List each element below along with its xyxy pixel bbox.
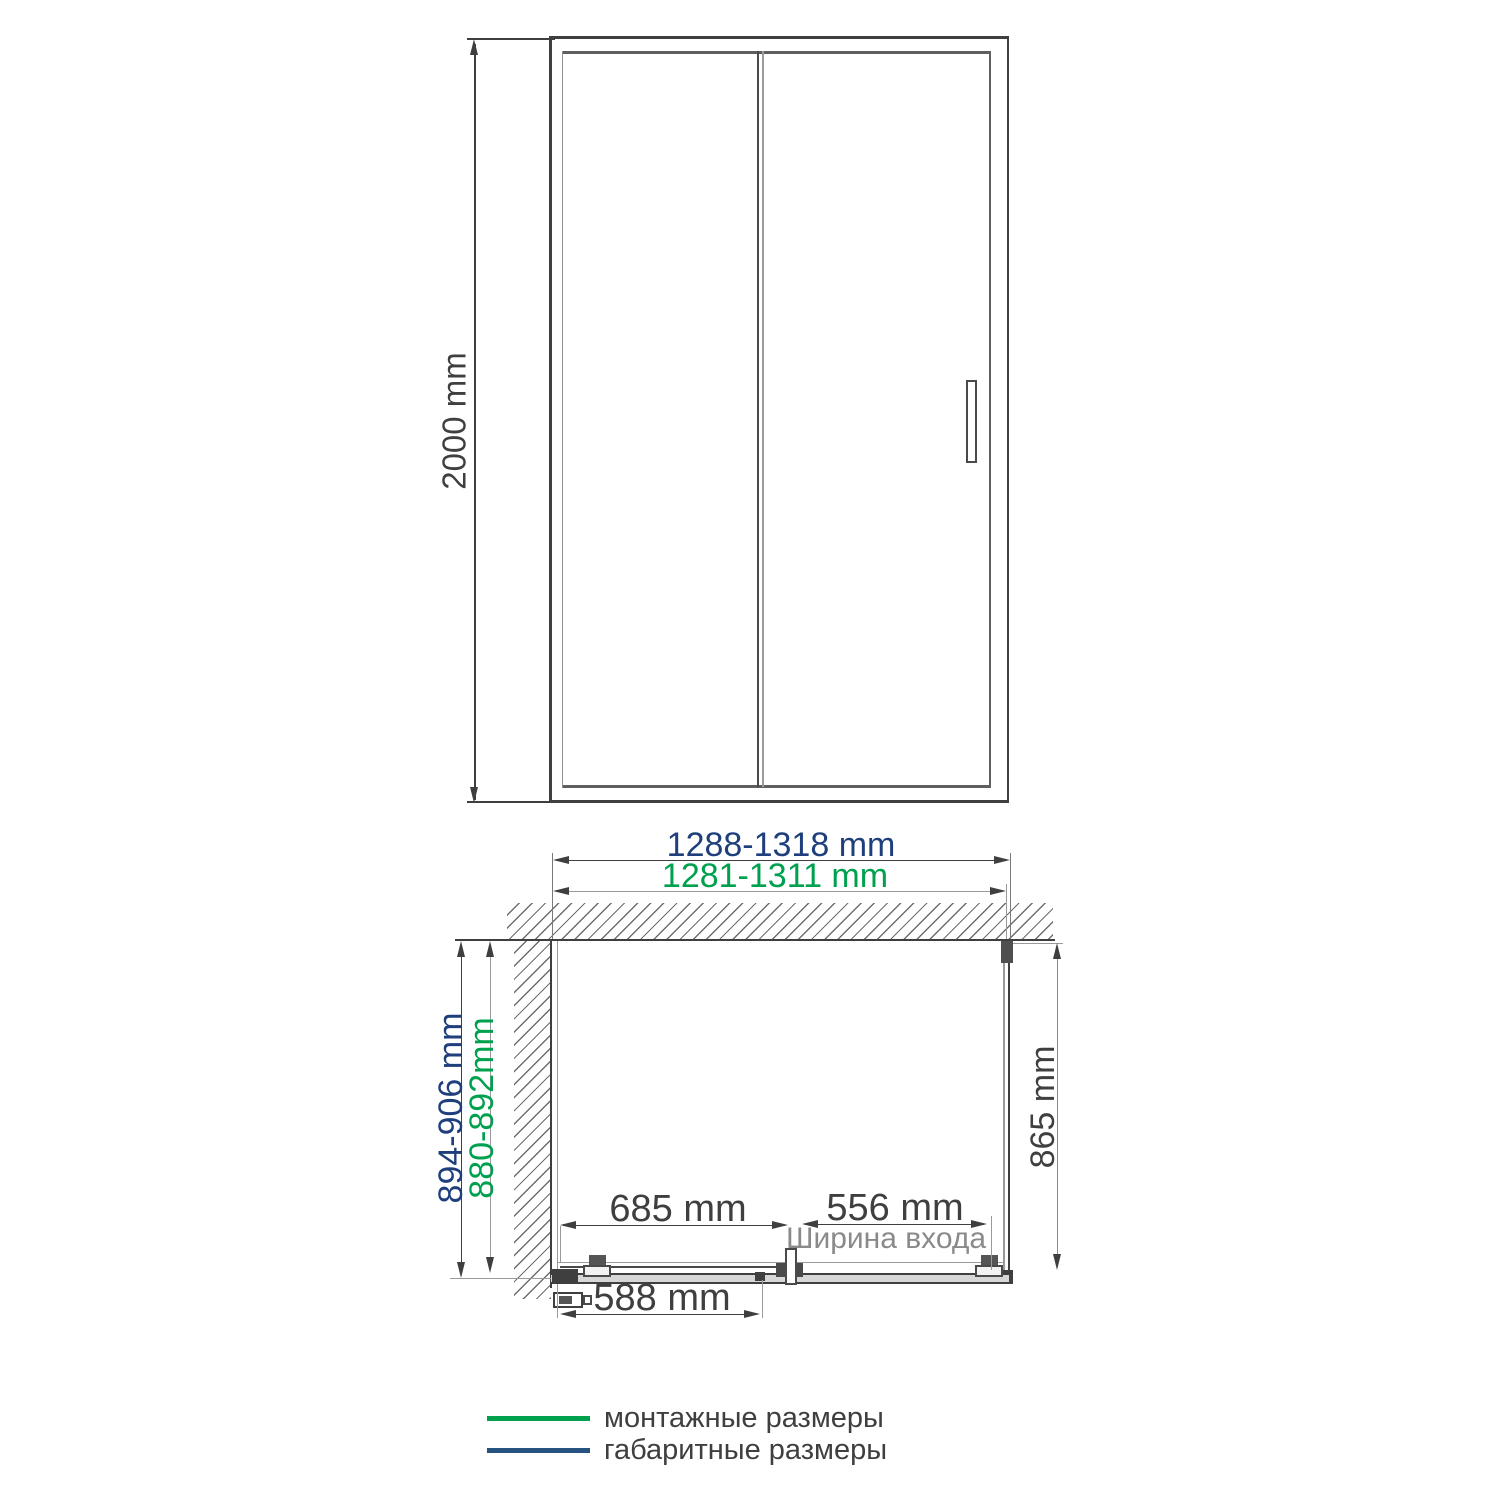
frame-top-outer-line: [550, 36, 1009, 39]
fixed-segment-arrow-left: [560, 1221, 576, 1229]
right-wall-profile-outer: [1007, 36, 1010, 802]
door-width-label: 588 mm: [593, 1279, 730, 1317]
side-panel-outer-line: [1008, 941, 1010, 1272]
wall-hatch-top: [507, 903, 1053, 939]
left-profile-plan-line: [557, 941, 559, 1271]
left-wall-profile-outer: [549, 36, 552, 802]
fixed-panel-edge: [757, 51, 760, 787]
right-wall-profile-inner: [989, 51, 991, 788]
width-dim-ext-right-outer: [1010, 853, 1011, 939]
door-width-arrow-right: [744, 1310, 760, 1318]
side-panel-inner-line: [1003, 941, 1005, 1272]
floor-bracket-core: [559, 1296, 572, 1304]
legend-swatch-overall: [487, 1448, 590, 1453]
overall-depth-arrow-down: [457, 1262, 465, 1278]
roller-right-base: [975, 1265, 1003, 1277]
side-depth-label: 865 mm: [1026, 1046, 1060, 1169]
overall-depth-arrow-up: [457, 941, 465, 957]
door-width-ext-left: [557, 1284, 559, 1318]
legend-item-mounting: монтажные размеры: [487, 1402, 884, 1434]
legend-label-overall: габаритные размеры: [604, 1434, 887, 1467]
mounting-depth-arrow-up: [486, 941, 494, 957]
mounting-width-arrow-right: [990, 887, 1006, 895]
overall-width-arrow-right: [994, 856, 1010, 864]
door-width-ext-right: [762, 1280, 764, 1318]
mounting-width-label: 1281-1311 mm: [662, 859, 888, 893]
mounting-width-arrow-left: [553, 887, 569, 895]
mounting-depth-label: 880-892mm: [465, 1017, 499, 1198]
side-panel-wall-bracket: [1001, 941, 1013, 963]
height-dim-arrow-up: [470, 39, 478, 55]
track-left-end-cap: [552, 1269, 578, 1284]
door-width-arrow-left: [560, 1310, 576, 1318]
floor-bracket-tab: [583, 1295, 592, 1305]
left-wall-profile-inner: [562, 51, 564, 788]
legend-item-overall: габаритные размеры: [487, 1434, 887, 1466]
entrance-ext-right: [991, 1216, 993, 1270]
door-edge-block: [755, 1272, 765, 1281]
mounting-depth-arrow-down: [486, 1257, 494, 1273]
legend-swatch-mounting: [487, 1416, 590, 1421]
side-depth-arrow-up: [1053, 943, 1061, 959]
fixed-segment-label: 685 mm: [609, 1190, 746, 1228]
overall-width-arrow-left: [553, 856, 569, 864]
door-handle: [966, 380, 977, 463]
height-dim-label: 2000 mm: [438, 352, 471, 490]
side-depth-arrow-down: [1053, 1254, 1061, 1270]
frame-bottom-inner-line: [562, 785, 991, 788]
legend-label-mounting: монтажные размеры: [604, 1402, 884, 1435]
fixed-segment-ext-left: [560, 1226, 561, 1262]
depth-dim-ext-bottom: [450, 1278, 553, 1280]
height-dim-line: [474, 44, 476, 800]
frame-top-inner-line: [562, 51, 991, 54]
frame-bottom-outer-line: [550, 800, 1009, 803]
sliding-door-edge: [762, 51, 764, 787]
wall-face-top-line: [455, 939, 1055, 942]
entrance-caption: Ширина входа: [786, 1224, 986, 1254]
height-dim-ext-top: [467, 38, 555, 40]
shower-enclosure-technical-drawing: 2000 mm 1288-1318 mm 1281-1311 mm 894-90…: [0, 0, 1500, 1500]
wall-face-left-line: [550, 941, 553, 1288]
roller-left-base: [583, 1265, 611, 1277]
width-dim-ext-left: [552, 853, 553, 939]
wall-hatch-left: [514, 941, 551, 1299]
